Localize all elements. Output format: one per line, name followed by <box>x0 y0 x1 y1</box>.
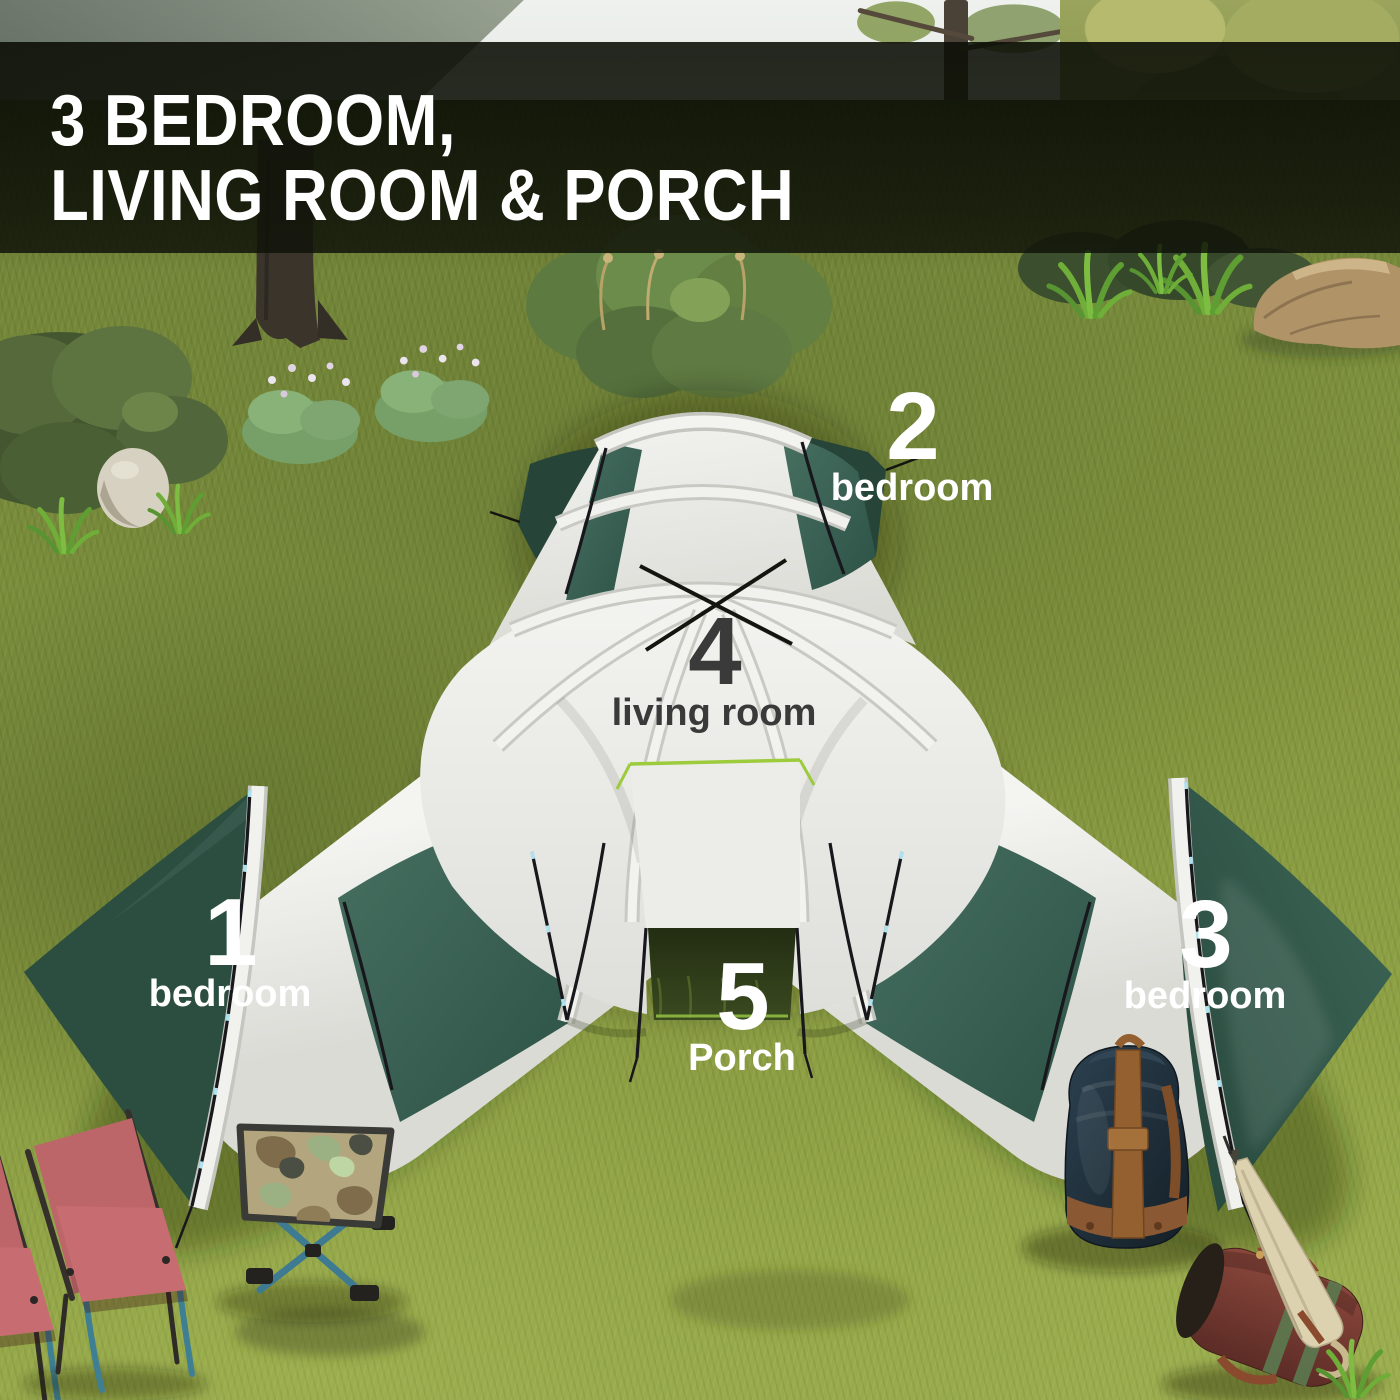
label-text: bedroom <box>1124 975 1287 1017</box>
flower-patch <box>375 344 489 442</box>
tent <box>24 416 1392 1248</box>
label-number: 3 <box>1124 895 1287 975</box>
label-living-room: 4 living room <box>612 612 817 734</box>
label-bedroom-1: 1 bedroom <box>149 893 312 1015</box>
title-line-1: 3 BEDROOM, <box>50 84 1232 159</box>
flower-patch <box>242 363 360 465</box>
label-text: Porch <box>688 1037 796 1079</box>
label-text: bedroom <box>149 973 312 1015</box>
label-text: living room <box>612 692 817 734</box>
label-number: 4 <box>612 612 817 692</box>
title-line-2: LIVING ROOM & PORCH <box>50 159 1232 234</box>
label-text: bedroom <box>831 467 994 509</box>
label-porch: 5 Porch <box>688 957 796 1079</box>
label-number: 5 <box>688 957 796 1037</box>
label-bedroom-2: 2 bedroom <box>831 387 994 509</box>
product-feature-image: 3 BEDROOM, LIVING ROOM & PORCH 1 bedroom… <box>0 0 1400 1400</box>
title-banner: 3 BEDROOM, LIVING ROOM & PORCH <box>0 42 1400 253</box>
label-number: 2 <box>831 387 994 467</box>
label-number: 1 <box>149 893 312 973</box>
label-bedroom-3: 3 bedroom <box>1124 895 1287 1017</box>
soil-patch <box>670 1270 910 1330</box>
